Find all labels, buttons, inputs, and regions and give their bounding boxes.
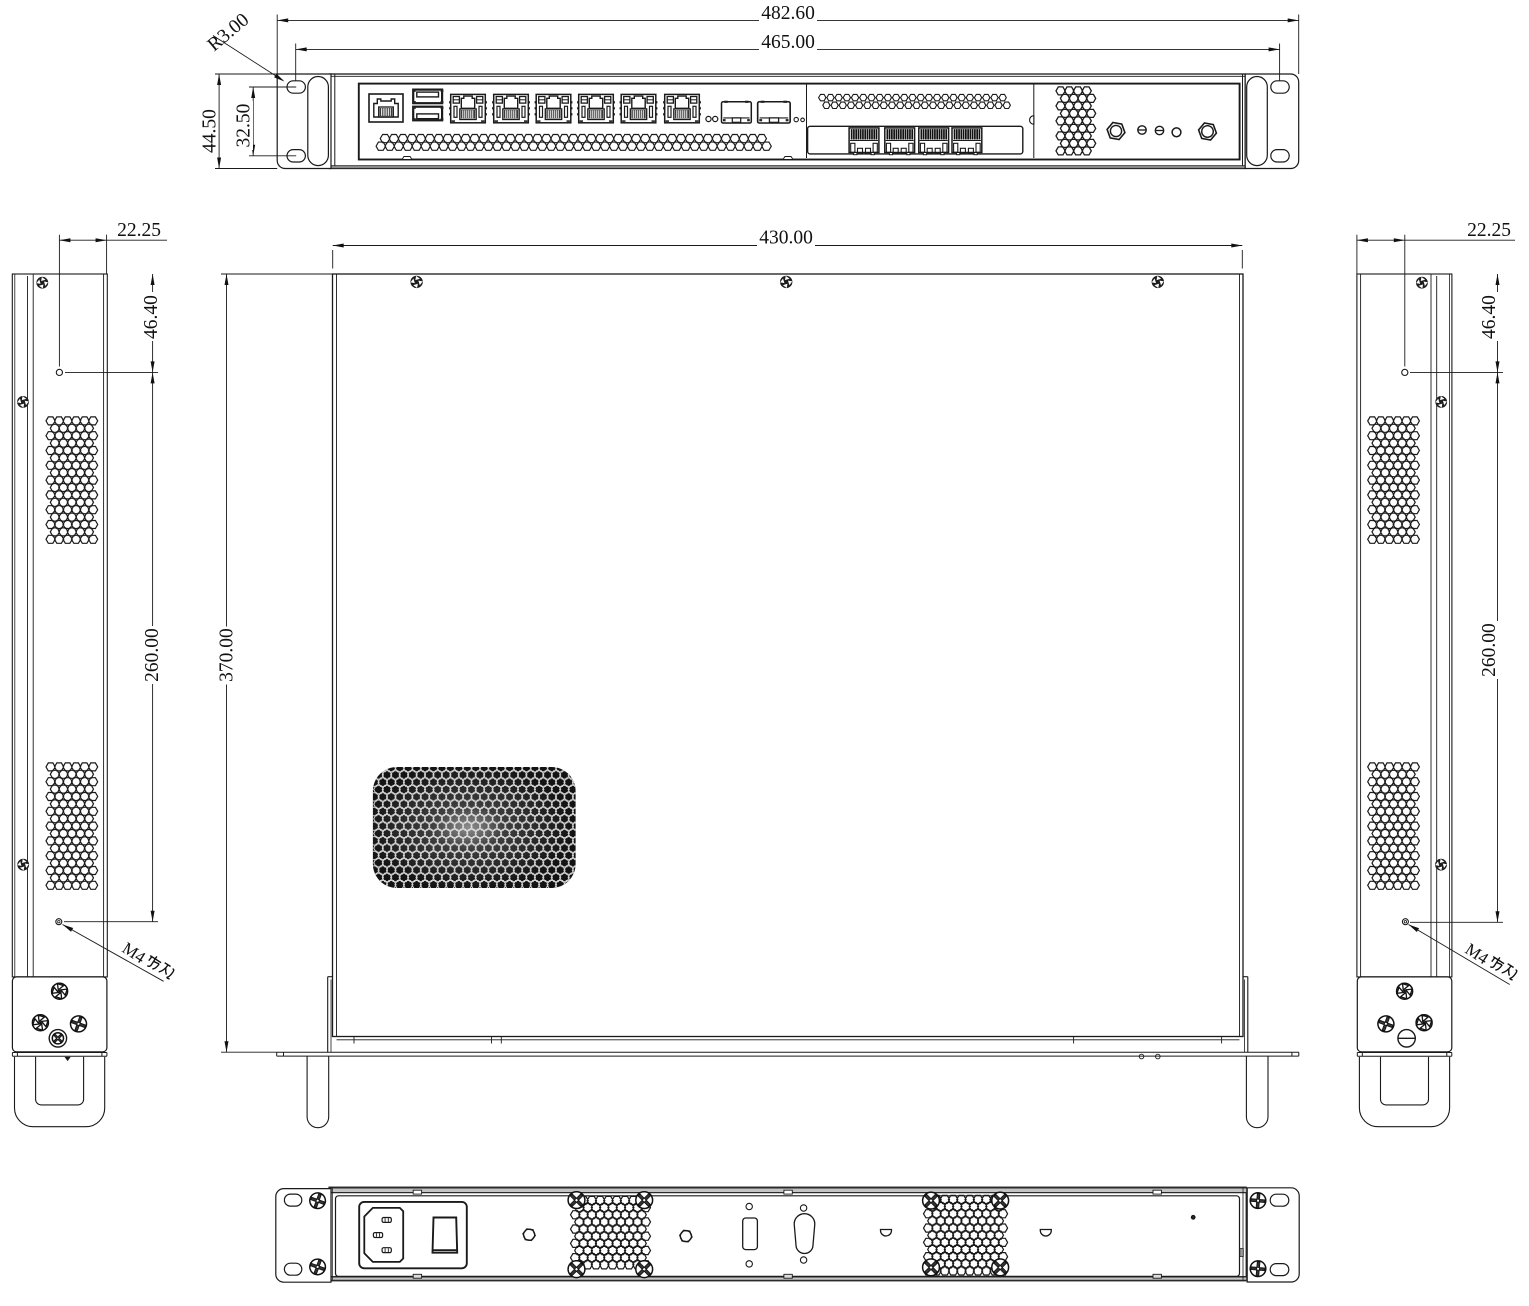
svg-text:430.00: 430.00 (759, 228, 813, 249)
svg-text:46.40: 46.40 (141, 295, 162, 339)
svg-text:22.25: 22.25 (117, 220, 161, 241)
svg-text:44.50: 44.50 (200, 109, 221, 153)
svg-text:46.40: 46.40 (1479, 295, 1500, 339)
svg-text:260.00: 260.00 (1479, 623, 1500, 677)
svg-text:465.00: 465.00 (761, 32, 815, 53)
svg-text:260.00: 260.00 (142, 628, 163, 682)
svg-text:482.60: 482.60 (761, 3, 815, 24)
svg-text:370.00: 370.00 (217, 628, 238, 682)
svg-text:32.50: 32.50 (234, 104, 255, 148)
svg-text:22.25: 22.25 (1467, 220, 1511, 241)
